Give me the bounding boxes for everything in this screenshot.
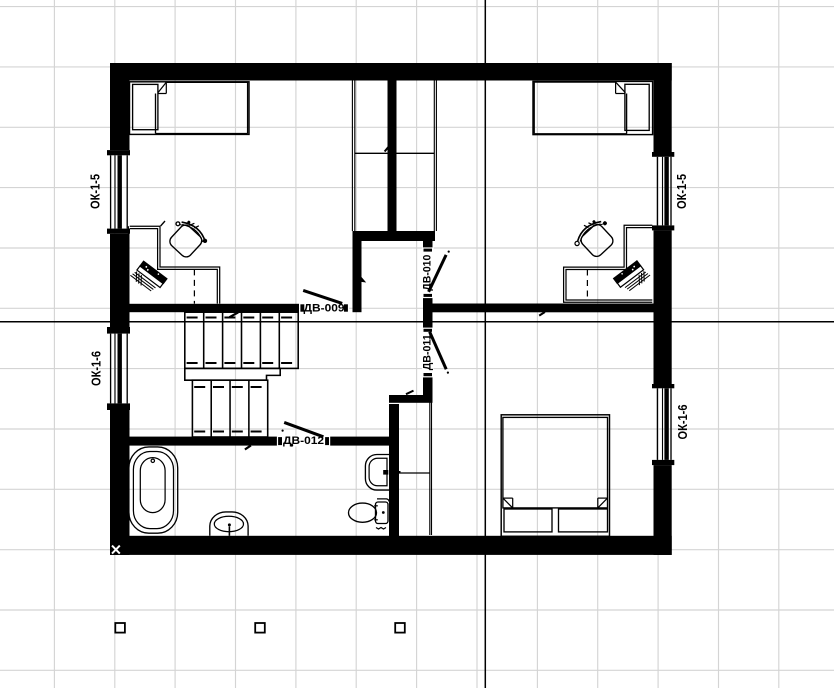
svg-text:ОК-1-6: ОК-1-6 xyxy=(89,351,104,386)
svg-text:ОК-1-5: ОК-1-5 xyxy=(674,174,689,209)
svg-text:ДВ-009: ДВ-009 xyxy=(304,302,345,314)
svg-text:ДВ-012: ДВ-012 xyxy=(283,435,324,447)
svg-text:ОК-1-5: ОК-1-5 xyxy=(87,174,102,209)
svg-text:ОК-1-6: ОК-1-6 xyxy=(675,405,690,440)
